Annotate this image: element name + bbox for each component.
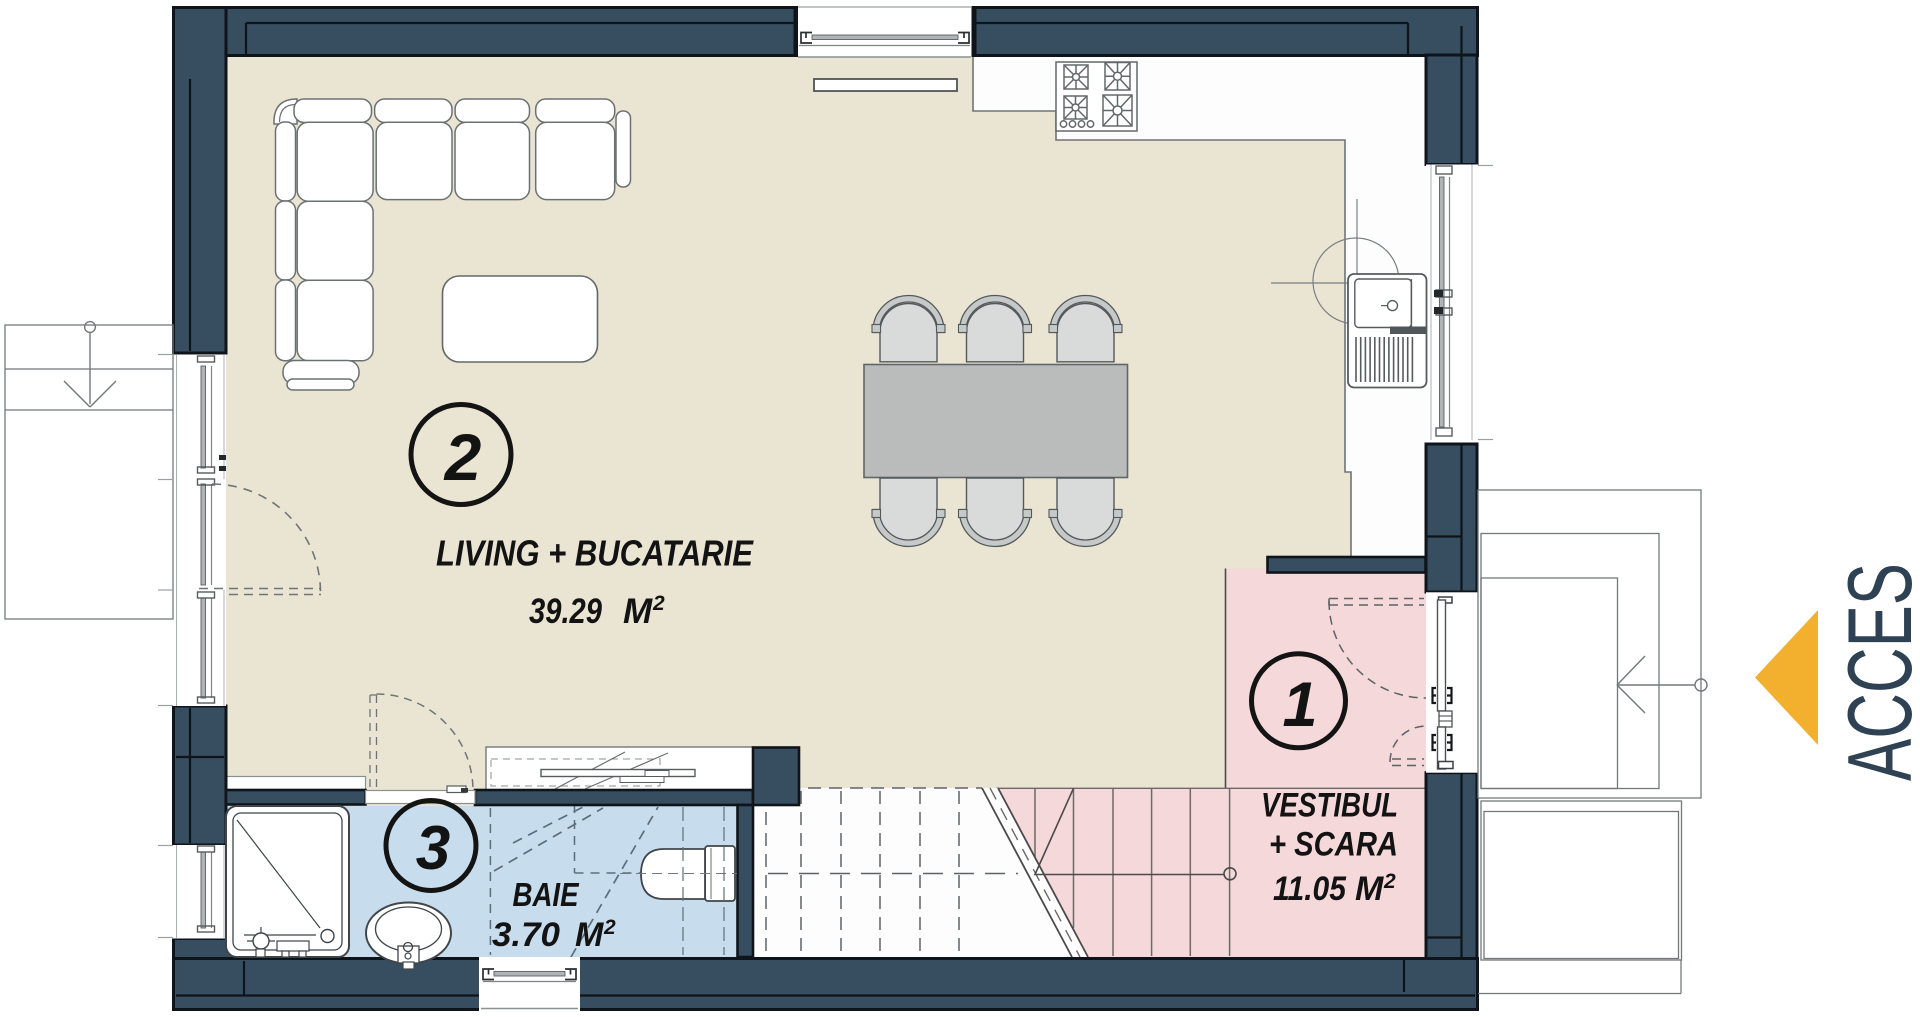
svg-text:3: 3	[416, 814, 450, 883]
svg-text:2: 2	[1383, 870, 1396, 893]
svg-text:2: 2	[443, 420, 482, 494]
svg-text:3.70: 3.70	[492, 916, 560, 954]
svg-text:2: 2	[603, 916, 616, 939]
svg-text:LIVING + BUCATARIE: LIVING + BUCATARIE	[436, 533, 754, 574]
svg-text:11.05: 11.05	[1273, 870, 1347, 908]
svg-text:+ SCARA: + SCARA	[1269, 826, 1398, 864]
svg-text:1: 1	[1282, 670, 1317, 740]
svg-text:M: M	[575, 916, 604, 954]
svg-text:39.29: 39.29	[529, 592, 602, 631]
svg-text:M: M	[1355, 870, 1384, 908]
svg-text:ACCES: ACCES	[1830, 563, 1920, 781]
svg-text:VESTIBUL: VESTIBUL	[1261, 787, 1398, 825]
svg-text:2: 2	[652, 592, 665, 615]
svg-text:M: M	[623, 592, 653, 631]
svg-text:BAIE: BAIE	[513, 876, 580, 913]
